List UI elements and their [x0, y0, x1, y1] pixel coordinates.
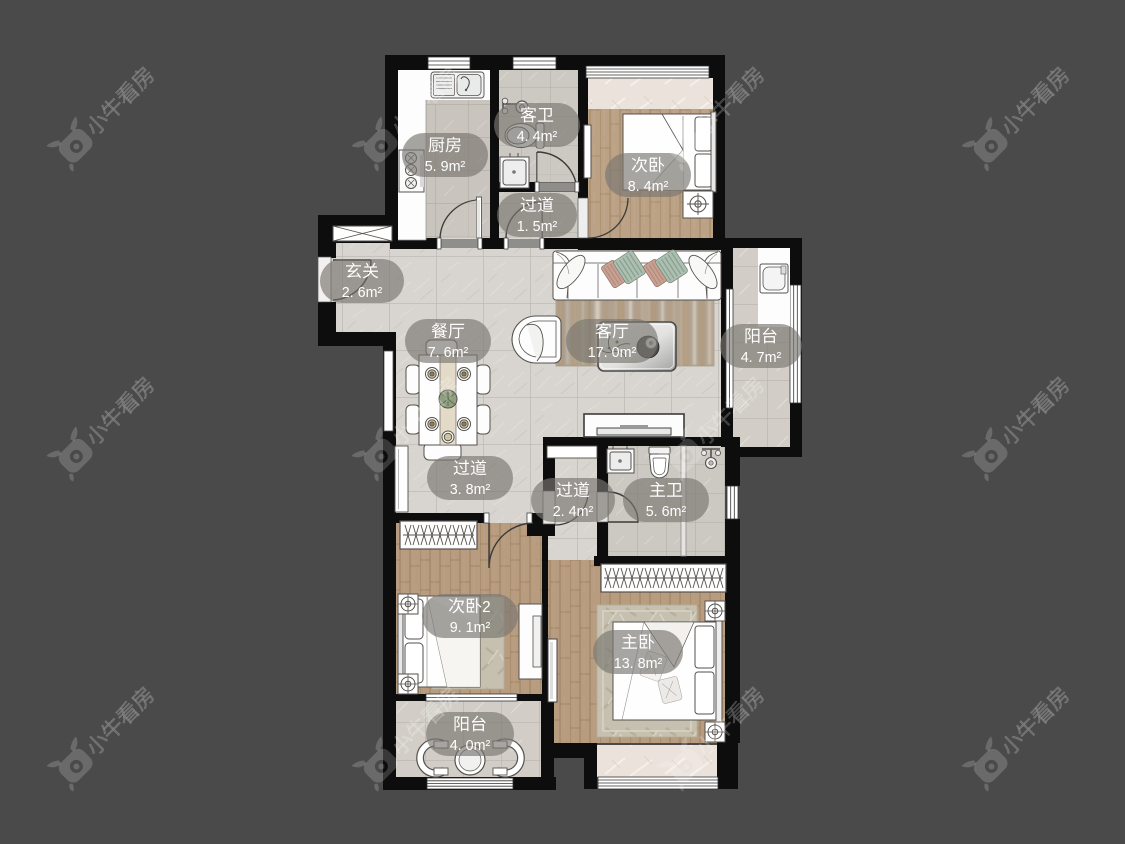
svg-text:7. 6m²: 7. 6m²: [428, 345, 469, 361]
svg-text:2: 2: [482, 599, 491, 616]
svg-text:4. 4m²: 4. 4m²: [517, 129, 558, 145]
svg-text:2. 4m²: 2. 4m²: [553, 504, 594, 520]
svg-text:5. 6m²: 5. 6m²: [646, 504, 687, 520]
svg-text:5. 9m²: 5. 9m²: [425, 159, 466, 175]
svg-text:9. 1m²: 9. 1m²: [450, 620, 491, 636]
svg-text:4. 7m²: 4. 7m²: [741, 350, 782, 366]
svg-text:4. 0m²: 4. 0m²: [450, 738, 491, 754]
svg-text:13. 8m²: 13. 8m²: [614, 656, 663, 672]
svg-text:3. 8m²: 3. 8m²: [450, 482, 491, 498]
svg-text:8. 4m²: 8. 4m²: [628, 179, 669, 195]
svg-text:17. 0m²: 17. 0m²: [588, 345, 637, 361]
svg-text:2. 6m²: 2. 6m²: [342, 285, 383, 301]
svg-text:1. 5m²: 1. 5m²: [517, 219, 558, 235]
